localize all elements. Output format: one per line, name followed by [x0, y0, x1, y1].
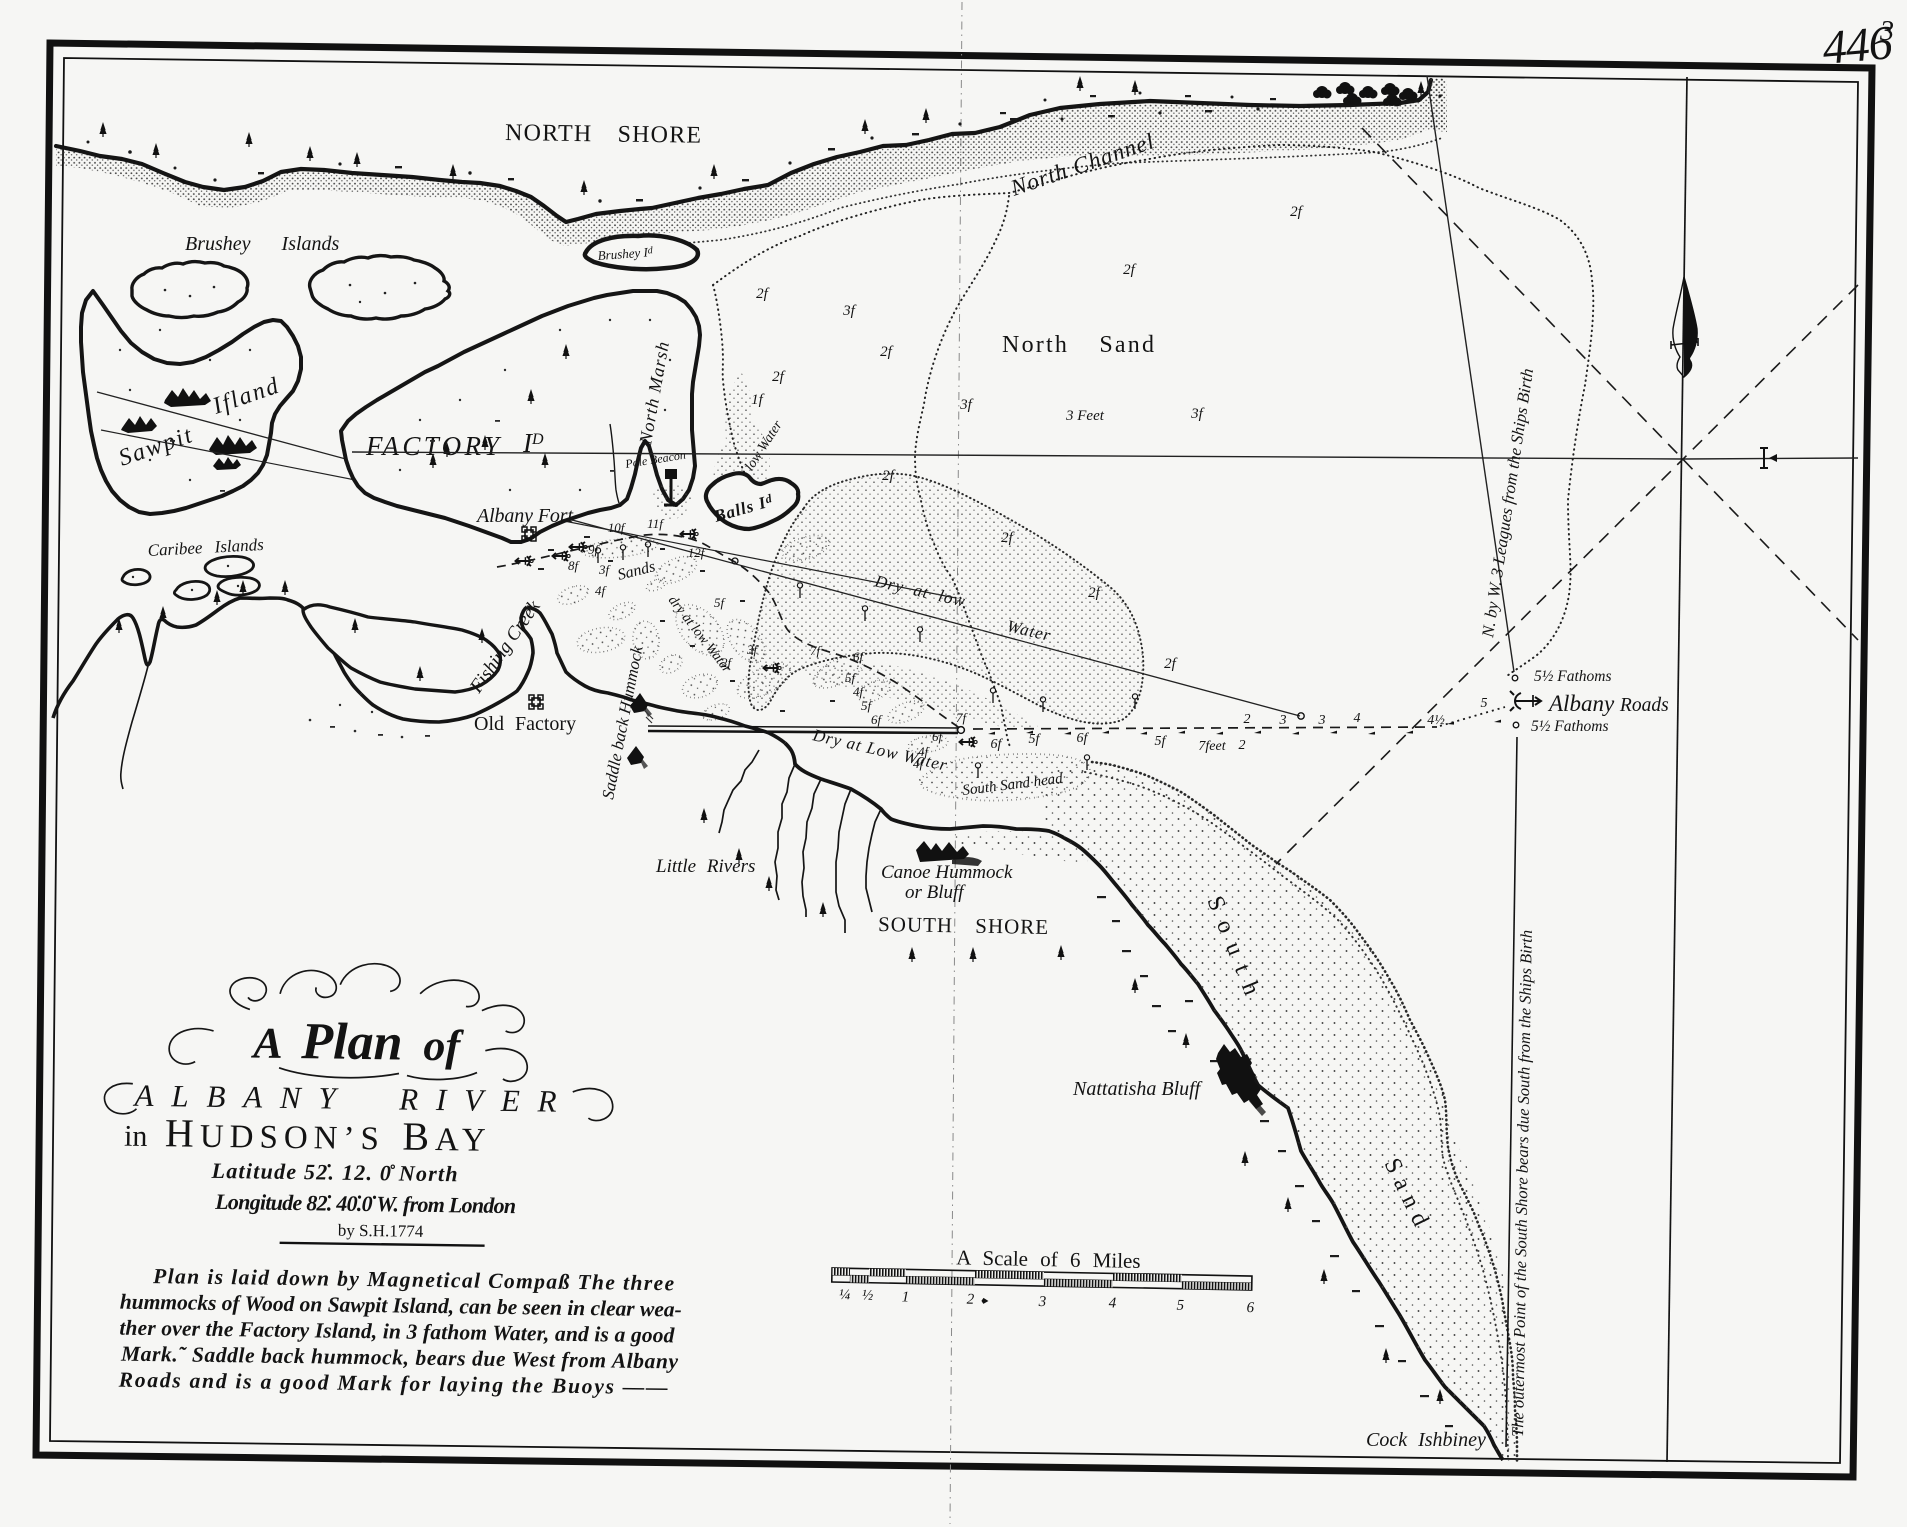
svg-text:4: 4: [1109, 1295, 1117, 1311]
svg-text:3f: 3f: [1190, 406, 1205, 422]
svg-text:5: 5: [1481, 696, 1488, 711]
svg-text:North Sand: North Sand: [1002, 332, 1160, 358]
svg-text:Brushey Islands: Brushey Islands: [185, 233, 340, 255]
svg-text:¼: ¼: [839, 1287, 851, 1303]
svg-text:A Scale of 6 Miles: A Scale of 6 Miles: [956, 1245, 1141, 1273]
svg-text:3 Feet: 3 Feet: [1065, 408, 1105, 424]
svg-text:6: 6: [1246, 1300, 1254, 1316]
svg-text:3: 3: [1038, 1294, 1047, 1310]
svg-text:11f: 11f: [647, 516, 665, 531]
svg-text:2: 2: [1244, 712, 1251, 727]
svg-text:2f: 2f: [1164, 656, 1178, 672]
svg-text:SOUTH SHORE: SOUTH SHORE: [878, 912, 1056, 939]
svg-text:7feet: 7feet: [1198, 739, 1226, 754]
svg-text:4: 4: [1354, 711, 1361, 726]
svg-text:½: ½: [862, 1288, 874, 1304]
svg-text:Albany Fort: Albany Fort: [475, 505, 573, 527]
svg-text:2: 2: [967, 1292, 975, 1308]
svg-text:5½ Fathoms: 5½ Fathoms: [1531, 718, 1609, 735]
svg-text:Cock Ishbiney: Cock Ishbiney: [1366, 1429, 1486, 1451]
svg-text:Old Factory: Old Factory: [474, 713, 576, 735]
svg-text:2f: 2f: [772, 369, 786, 385]
svg-text:Nattatisha Bluff: Nattatisha Bluff: [1072, 1078, 1203, 1100]
svg-text:Albany Roads: Albany Roads: [1547, 691, 1669, 716]
svg-text:3f: 3f: [959, 397, 974, 413]
svg-text:2f: 2f: [880, 344, 894, 360]
svg-text:Canoe Hummock: Canoe Hummock: [881, 862, 1013, 883]
svg-text:2: 2: [1239, 738, 1246, 753]
svg-text:A Plan of: A Plan of: [250, 1012, 465, 1072]
svg-text:2f: 2f: [756, 286, 770, 302]
svg-text:2f: 2f: [1123, 262, 1137, 278]
svg-text:by S.H.1774: by S.H.1774: [338, 1221, 424, 1241]
svg-text:5½ Fathoms: 5½ Fathoms: [1534, 668, 1612, 685]
svg-text:12f: 12f: [688, 545, 707, 560]
svg-text:1: 1: [902, 1289, 910, 1305]
svg-text:10f: 10f: [608, 520, 627, 535]
svg-text:NORTH SHORE: NORTH SHORE: [505, 120, 710, 149]
svg-text:or Bluff: or Bluff: [905, 882, 966, 903]
svg-text:3: 3: [1879, 16, 1894, 47]
svg-text:3: 3: [1318, 713, 1326, 728]
svg-text:1f: 1f: [751, 392, 765, 408]
svg-text:Longitude 82̇. 40̇.0̇ W. from: Longitude 82̇. 40̇.0̇ W. from London: [214, 1189, 516, 1218]
svg-text:2f: 2f: [1290, 204, 1304, 220]
svg-text:3: 3: [1279, 713, 1287, 728]
svg-text:4½: 4½: [1427, 713, 1445, 728]
svg-text:5: 5: [1176, 1298, 1184, 1314]
svg-text:3f: 3f: [842, 303, 857, 319]
